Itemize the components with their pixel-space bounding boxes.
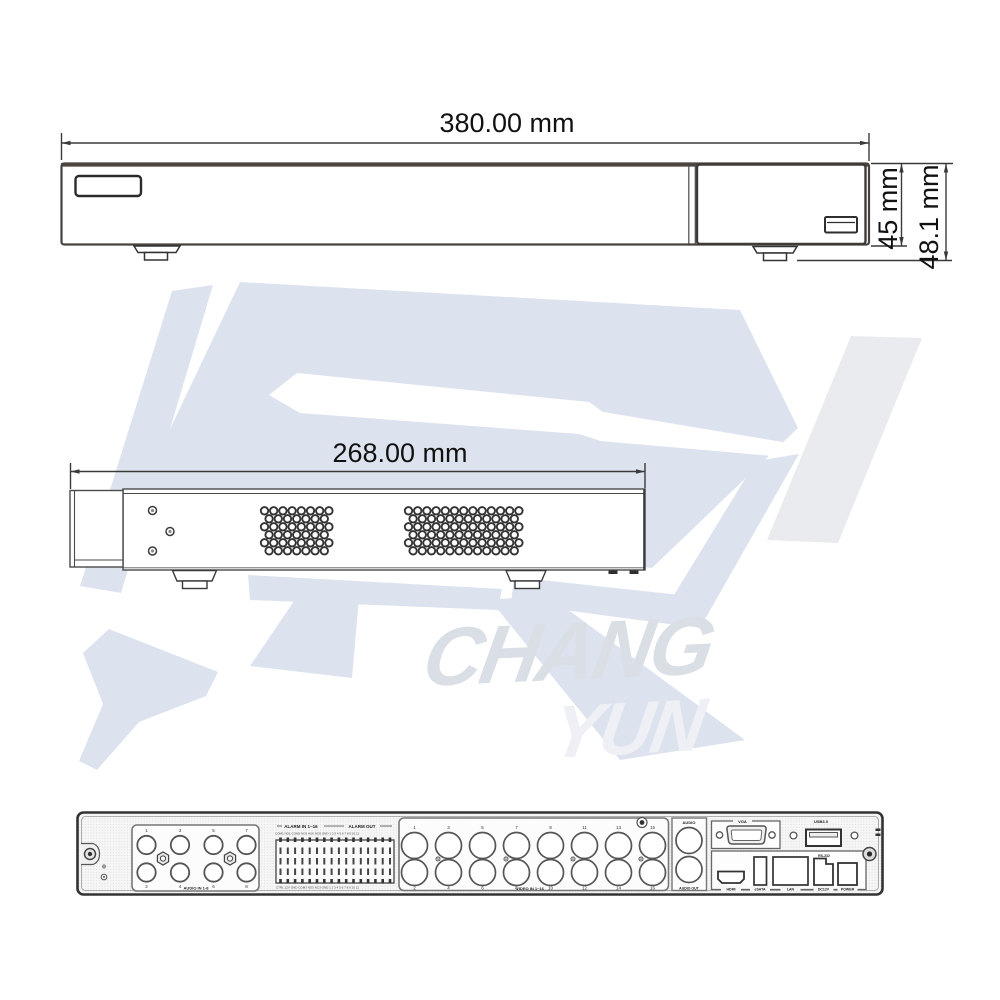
svg-text:10: 10 [548, 886, 554, 891]
svg-text:13: 13 [616, 825, 622, 830]
svg-text:AUDIO: AUDIO [683, 820, 696, 825]
svg-text:11: 11 [582, 825, 587, 830]
svg-text:VIDEO IN 1~16: VIDEO IN 1~16 [516, 886, 544, 891]
svg-text:CTRL 12V GND COM3 NO3 NC3 GND: CTRL 12V GND COM3 NO3 NC3 GND 1 2 3 4 5 … [276, 886, 359, 890]
svg-text:RS-232: RS-232 [818, 854, 830, 858]
svg-text:15: 15 [650, 825, 656, 830]
svg-text:AUDIO OUT: AUDIO OUT [679, 887, 700, 891]
svg-text:380.00 mm: 380.00 mm [439, 108, 574, 138]
svg-text:VGA: VGA [738, 819, 747, 824]
svg-text:ALARM OUT: ALARM OUT [349, 824, 376, 829]
svg-text:268.00 mm: 268.00 mm [332, 438, 467, 468]
svg-text:DC12V: DC12V [818, 888, 830, 892]
svg-text:12: 12 [582, 886, 588, 891]
svg-text:ALARM IN 1~16: ALARM IN 1~16 [284, 824, 318, 829]
svg-text:45 mm: 45 mm [873, 167, 903, 250]
svg-text:USB3.0: USB3.0 [814, 819, 829, 824]
svg-text:COM1 NO1 COM2 NO2 AUX NO5 GND: COM1 NO1 COM2 NO2 AUX NO5 GND 1 2 3 4 5 … [275, 832, 359, 836]
svg-text:AUDIO IN 1-8: AUDIO IN 1-8 [184, 886, 210, 891]
svg-text:LAN: LAN [787, 888, 795, 892]
svg-text:POWER: POWER [841, 888, 855, 892]
svg-text:YUN: YUN [546, 682, 713, 774]
svg-text:16: 16 [650, 886, 656, 891]
svg-text:48.1 mm: 48.1 mm [914, 164, 944, 269]
svg-text:HDMI: HDMI [727, 888, 736, 892]
svg-text:eSATA: eSATA [755, 888, 766, 892]
svg-text:14: 14 [616, 886, 622, 891]
